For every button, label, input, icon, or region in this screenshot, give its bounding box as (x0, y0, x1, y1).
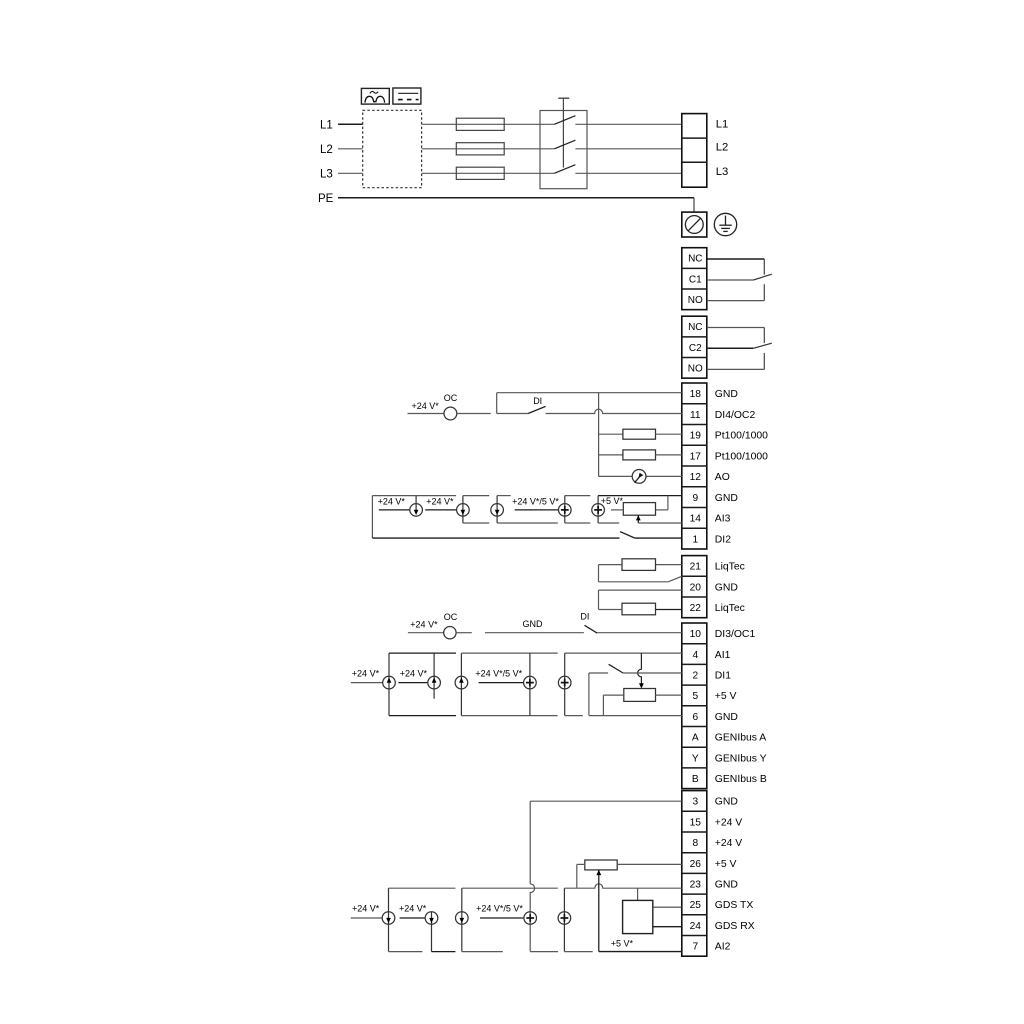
svg-text:AI3: AI3 (715, 514, 731, 525)
svg-text:GND: GND (715, 582, 738, 593)
svg-text:GENIbus B: GENIbus B (715, 774, 767, 785)
svg-text:2: 2 (692, 670, 698, 681)
svg-text:+24 V*: +24 V* (400, 668, 428, 678)
svg-text:15: 15 (690, 817, 702, 828)
svg-text:PE: PE (318, 193, 334, 205)
svg-text:AI1: AI1 (715, 650, 731, 661)
svg-text:L1: L1 (320, 119, 333, 131)
svg-text:+5 V*: +5 V* (611, 939, 634, 949)
svg-text:GND: GND (715, 712, 738, 723)
svg-text:22: 22 (690, 603, 702, 614)
svg-text:10: 10 (690, 629, 702, 640)
svg-text:+5 V*: +5 V* (601, 496, 624, 506)
svg-text:OC: OC (444, 612, 458, 622)
svg-text:L3: L3 (320, 168, 333, 180)
svg-text:GND: GND (715, 389, 738, 400)
svg-text:AO: AO (715, 472, 730, 483)
svg-text:14: 14 (690, 514, 702, 525)
svg-text:5: 5 (692, 691, 698, 702)
svg-text:NC: NC (688, 322, 702, 333)
svg-text:L2: L2 (716, 142, 729, 154)
svg-text:+24 V*: +24 V* (378, 497, 406, 507)
svg-text:7: 7 (692, 942, 698, 953)
svg-text:A: A (692, 733, 699, 744)
svg-text:NO: NO (688, 295, 703, 306)
svg-text:25: 25 (690, 900, 702, 911)
svg-text:+24 V*: +24 V* (352, 904, 380, 914)
svg-text:OC: OC (444, 393, 458, 403)
svg-text:12: 12 (690, 472, 702, 483)
svg-text:3: 3 (692, 797, 698, 808)
svg-text:4: 4 (692, 650, 698, 661)
svg-text:DI4/OC2: DI4/OC2 (715, 410, 756, 421)
svg-text:NO: NO (688, 364, 703, 375)
svg-text:20: 20 (690, 582, 702, 593)
svg-text:LiqTec: LiqTec (715, 603, 745, 614)
svg-text:GND: GND (715, 493, 738, 504)
svg-text:GENIbus A: GENIbus A (715, 733, 766, 744)
svg-text:+24 V*: +24 V* (410, 620, 438, 630)
svg-text:8: 8 (692, 838, 698, 849)
svg-text:Pt100/1000: Pt100/1000 (715, 451, 768, 462)
svg-text:1: 1 (692, 534, 698, 545)
svg-text:C2: C2 (689, 343, 702, 354)
svg-text:GDS TX: GDS TX (715, 900, 754, 911)
svg-text:C1: C1 (689, 274, 702, 285)
svg-text:L1: L1 (716, 118, 729, 130)
svg-text:DI: DI (580, 611, 589, 621)
svg-text:17: 17 (690, 451, 702, 462)
svg-text:L2: L2 (320, 144, 333, 156)
svg-text:DI: DI (533, 396, 542, 406)
svg-text:GND: GND (715, 879, 738, 890)
svg-text:Pt100/1000: Pt100/1000 (715, 431, 768, 442)
svg-text:19: 19 (690, 431, 702, 442)
svg-text:11: 11 (690, 410, 701, 421)
svg-text:+5 V: +5 V (715, 691, 737, 702)
svg-text:18: 18 (690, 389, 702, 400)
svg-text:24: 24 (690, 921, 702, 932)
svg-text:+24 V*/5 V*: +24 V*/5 V* (512, 497, 559, 507)
svg-text:+24 V: +24 V (715, 817, 743, 828)
svg-text:+24 V: +24 V (715, 838, 743, 849)
svg-text:+24 V*: +24 V* (352, 668, 380, 678)
svg-text:DI2: DI2 (715, 534, 731, 545)
svg-text:GND: GND (715, 797, 738, 808)
svg-text:GDS RX: GDS RX (715, 921, 755, 932)
svg-text:+24 V*: +24 V* (399, 904, 427, 914)
svg-text:+24 V*: +24 V* (412, 401, 440, 411)
svg-text:9: 9 (692, 493, 698, 504)
svg-text:B: B (692, 774, 699, 785)
svg-text:26: 26 (690, 859, 702, 870)
svg-text:+24 V*/5 V*: +24 V*/5 V* (475, 668, 522, 678)
svg-text:+24 V*/5 V*: +24 V*/5 V* (476, 904, 523, 914)
svg-text:L3: L3 (716, 166, 729, 178)
svg-text:+24 V*: +24 V* (426, 497, 454, 507)
svg-text:23: 23 (690, 879, 702, 890)
svg-text:21: 21 (690, 562, 702, 573)
svg-text:DI3/OC1: DI3/OC1 (715, 629, 756, 640)
svg-text:AI2: AI2 (715, 942, 731, 953)
svg-text:NC: NC (688, 254, 702, 265)
svg-text:GND: GND (523, 619, 544, 629)
svg-text:Y: Y (692, 753, 699, 764)
svg-text:GENIbus Y: GENIbus Y (715, 753, 767, 764)
svg-text:+5 V: +5 V (715, 859, 737, 870)
svg-text:DI1: DI1 (715, 670, 731, 681)
svg-text:LiqTec: LiqTec (715, 562, 745, 573)
svg-text:6: 6 (692, 712, 698, 723)
